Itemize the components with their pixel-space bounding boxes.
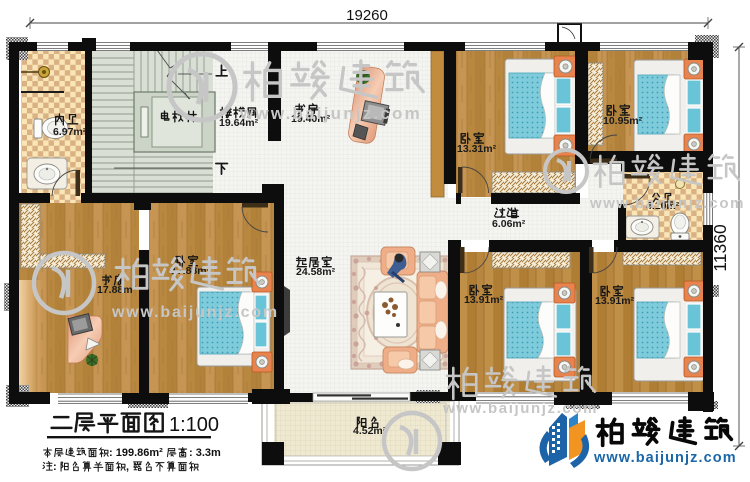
svg-text::: : <box>53 461 57 473</box>
svg-text:,: , <box>126 461 129 473</box>
svg-text:13.91m²: 13.91m² <box>464 294 504 306</box>
svg-text:17.88m²: 17.88m² <box>97 284 137 296</box>
svg-text:1:100: 1:100 <box>169 414 219 436</box>
svg-text:6.06m²: 6.06m² <box>492 218 526 230</box>
svg-text:11360: 11360 <box>710 224 730 272</box>
svg-text:: 3.3m: : 3.3m <box>189 447 221 459</box>
svg-text:www.baijunjz.com: www.baijunjz.com <box>589 195 745 212</box>
svg-text:: 199.86m²: : 199.86m² <box>109 447 163 459</box>
svg-text:24.58m²: 24.58m² <box>296 266 336 278</box>
svg-text:4.52m²: 4.52m² <box>353 425 387 437</box>
svg-text:13.91m²: 13.91m² <box>595 295 635 307</box>
svg-text:6.97m²: 6.97m² <box>53 126 87 138</box>
svg-text:10.95m²: 10.95m² <box>603 115 643 127</box>
svg-text:www.baijunjz.com: www.baijunjz.com <box>111 304 279 321</box>
svg-text:19260: 19260 <box>346 7 388 24</box>
svg-text:www.baijunjz.com: www.baijunjz.com <box>239 104 422 123</box>
svg-text:13.31m²: 13.31m² <box>457 143 497 155</box>
svg-text:www.baijunjz.com: www.baijunjz.com <box>593 450 737 466</box>
svg-text:www.baijunjz.com: www.baijunjz.com <box>442 400 598 417</box>
